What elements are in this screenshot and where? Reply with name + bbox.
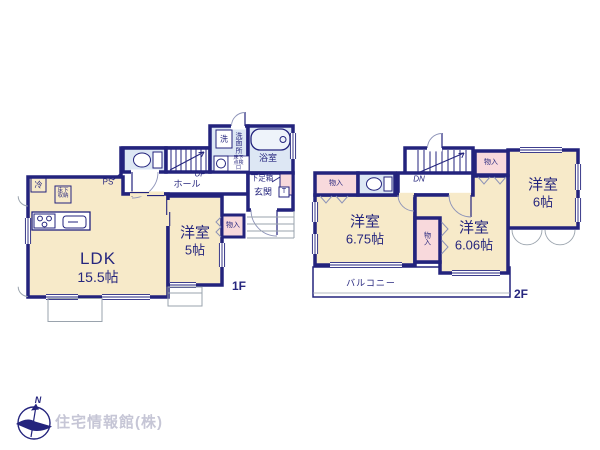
floorplan-canvas: LDK 15.5帖 洋室 5帖 ホール UP PS 冷 床下収納 洗 洗面所 床… xyxy=(0,0,600,450)
stairs-up-label: UP xyxy=(194,169,205,178)
closet-2f-mid-label: 物入 xyxy=(424,233,432,248)
toilet-icon-2f xyxy=(367,177,393,191)
bedroom5-name-label: 洋室 xyxy=(180,224,210,241)
closet-2f-top-label: 物入 xyxy=(484,159,498,167)
washer-label: 洗 xyxy=(220,134,228,143)
kitchen-icon xyxy=(32,212,90,230)
fridge-label: 冷 xyxy=(35,180,43,189)
entrance-label: 玄関 xyxy=(254,186,272,196)
bedroom606-size-label: 6.06帖 xyxy=(455,239,493,254)
inspection-hatch-label: 床下点検口 xyxy=(233,156,244,172)
closet-1f-label: 物入 xyxy=(226,222,240,230)
bedroom675-name-label: 洋室 xyxy=(350,213,380,230)
floorplan-drawing xyxy=(0,0,600,450)
company-name: 住宅情報館(株) xyxy=(55,411,163,432)
bedroom675-size-label: 6.75帖 xyxy=(346,233,384,248)
bedroom6-name-label: 洋室 xyxy=(528,176,558,193)
toilet-icon-1f xyxy=(134,152,163,168)
window-arcs-2f xyxy=(512,230,575,245)
compass-north-label: N xyxy=(35,395,42,405)
t-mark-label: T xyxy=(282,188,286,196)
bedroom6-size-label: 6帖 xyxy=(533,196,553,211)
bedroom606-name-label: 洋室 xyxy=(459,219,489,236)
shoebox-label: 下足箱 xyxy=(251,175,274,184)
ldk-name-label: LDK xyxy=(80,249,116,269)
ldk-size-label: 15.5帖 xyxy=(77,269,118,285)
compass-icon xyxy=(16,404,52,440)
bathtub-icon xyxy=(251,129,290,150)
underfloor-storage-label: 床下収納 xyxy=(57,189,69,201)
balcony-label: バルコニー xyxy=(346,278,396,288)
hall-2f xyxy=(398,173,473,195)
floor2-label: 2F xyxy=(514,288,528,302)
floor1-label: 1F xyxy=(232,280,246,294)
hall-label: ホール xyxy=(173,179,200,189)
washroom-label: 洗面所 xyxy=(235,133,243,155)
stairs-dn-label: DN xyxy=(413,174,425,183)
bedroom5-size-label: 5帖 xyxy=(185,244,205,259)
ps-label: PS xyxy=(103,177,114,186)
washbasin-icon xyxy=(214,156,228,171)
bath-label: 浴室 xyxy=(259,153,277,163)
floor1-plan xyxy=(18,112,296,322)
closet-2f-left-label: 物入 xyxy=(329,180,343,188)
